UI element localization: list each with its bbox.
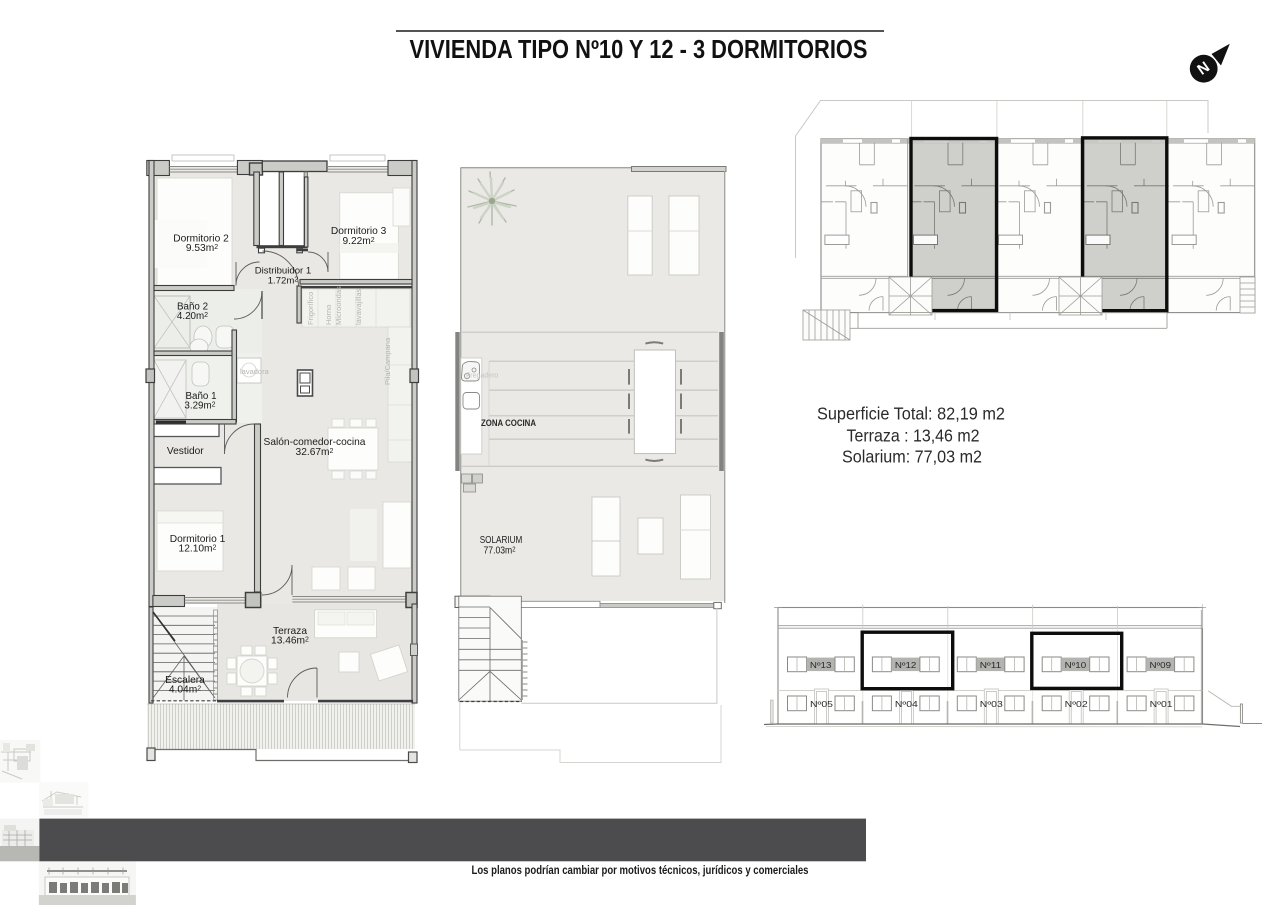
- svg-text:Nº05: Nº05: [810, 699, 833, 709]
- svg-text:12.10m2: 12.10m2: [179, 544, 217, 555]
- svg-text:SOLARIUM: SOLARIUM: [480, 534, 523, 546]
- svg-text:Nº04: Nº04: [895, 699, 918, 709]
- svg-text:Pila/Campana: Pila/Campana: [383, 337, 392, 385]
- svg-text:Los planos podrían cambiar por: Los planos podrían cambiar por motivos t…: [472, 864, 809, 877]
- svg-text:Horno: Horno: [324, 305, 333, 325]
- svg-text:9.53m2: 9.53m2: [186, 243, 218, 254]
- svg-text:Nº12: Nº12: [895, 660, 917, 670]
- svg-text:VIVIENDA TIPO Nº10 Y 12 - 3 DO: VIVIENDA TIPO Nº10 Y 12 - 3 DORMITORIOS: [410, 36, 868, 64]
- svg-text:9.22m2: 9.22m2: [342, 236, 374, 247]
- svg-text:32.67m2: 32.67m2: [296, 447, 334, 458]
- svg-text:Fregadero: Fregadero: [466, 373, 498, 380]
- svg-text:Vestidor: Vestidor: [167, 446, 204, 457]
- svg-text:Nº02: Nº02: [1065, 699, 1088, 709]
- svg-text:4.20m2: 4.20m2: [177, 311, 208, 322]
- svg-text:Nº09: Nº09: [1150, 660, 1172, 670]
- svg-text:lavavajillas: lavavajillas: [354, 288, 363, 325]
- svg-text:Nº13: Nº13: [810, 660, 832, 670]
- svg-text:13.46m2: 13.46m2: [271, 636, 309, 647]
- svg-text:ZONA COCINA: ZONA COCINA: [481, 418, 536, 428]
- svg-text:Frigorífico: Frigorífico: [306, 292, 315, 325]
- svg-text:3.29m2: 3.29m2: [184, 401, 215, 412]
- svg-text:Microondas: Microondas: [334, 286, 343, 325]
- svg-text:Nº01: Nº01: [1150, 699, 1173, 709]
- svg-text:77.03m2: 77.03m2: [484, 546, 516, 557]
- svg-text:Nº03: Nº03: [980, 699, 1003, 709]
- svg-text:Nº10: Nº10: [1065, 660, 1087, 670]
- svg-text:1.72m2: 1.72m2: [268, 276, 299, 287]
- svg-text:Terraza : 13,46 m2: Terraza : 13,46 m2: [847, 426, 980, 446]
- svg-text:Superficie Total: 82,19 m2: Superficie Total: 82,19 m2: [817, 404, 1005, 424]
- svg-text:Nº11: Nº11: [980, 660, 1002, 670]
- svg-text:4.04m2: 4.04m2: [169, 685, 201, 696]
- svg-text:lavadora: lavadora: [240, 367, 270, 376]
- svg-text:Solarium: 77,03 m2: Solarium: 77,03 m2: [842, 447, 982, 467]
